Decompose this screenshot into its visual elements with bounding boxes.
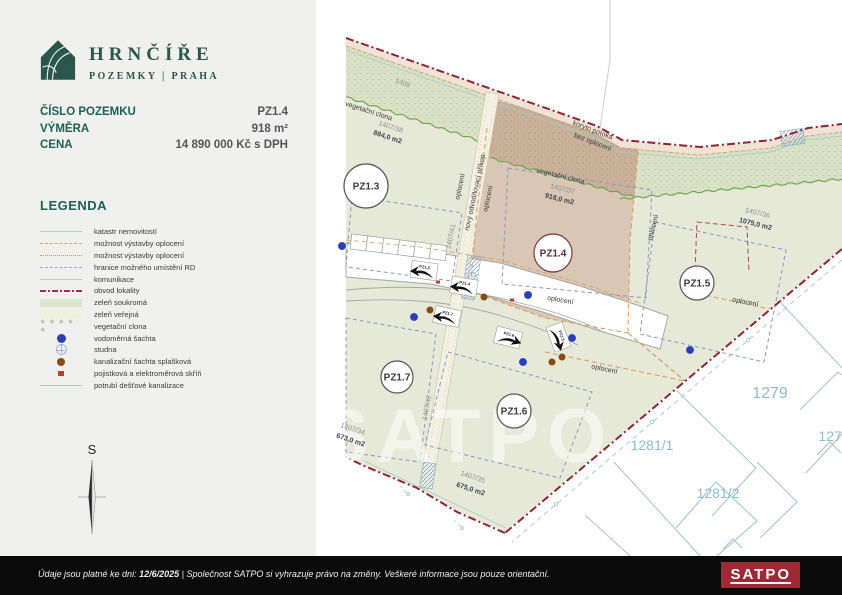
line-dashdot-swatch [40,290,82,292]
map-label: 1277 [818,428,842,444]
legend-label: kanalizační šachta splašková [94,357,191,366]
dot-blue-swatch [40,334,82,343]
watermark: SATPO [318,394,614,479]
sewer-shaft-icon [481,294,488,301]
legend-label: potrubí dešťové kanalizace [94,381,184,390]
plot-marker-label: PZ1.7 [384,373,411,384]
brand: HRNČÍŘE POZEMKY | PRAHA [40,38,219,87]
legend-label: možnost výstavby oplocení [94,251,184,260]
compass: S [72,442,112,542]
map-label: 1281/1 [631,437,674,453]
fill-private-swatch [40,299,82,307]
circle-cross-swatch [40,344,82,355]
legend-item: možnost výstavby oplocení [40,250,302,262]
meter-box-icon [510,299,514,302]
plot-marker-pz1-5[interactable]: PZ1.5 [680,266,714,300]
brand-logo-icon [40,38,76,87]
legend-label: vodoměrná šachta [94,334,156,343]
brochure-page: SATPO 1408vegetační clona1407/38884,0 m2… [0,0,842,595]
info-label: VÝMĚRA [40,121,89,138]
brand-subtitle: POZEMKY | PRAHA [89,71,219,82]
line-gray-swatch [40,279,82,280]
sewer-shaft-icon [427,307,434,314]
plot-marker-pz1-4[interactable]: PZ1.4 [534,234,572,272]
legend-item: hranice možného umístění RD [40,261,302,273]
legend-item: studna [40,344,302,356]
square-red-swatch [40,371,82,376]
plot-marker-label: PZ1.4 [540,249,567,260]
meter-box-icon [436,281,440,284]
map-label: 1281/2 [697,485,740,501]
line-orange-dash-swatch [40,243,82,244]
plot-marker-label: PZ1.6 [501,407,528,418]
legend: LEGENDA katastr nemovitostímožnost výsta… [40,198,302,391]
legend-label: obvod lokality [94,286,139,295]
plot-marker-pz1-7[interactable]: PZ1.7 [381,361,413,393]
water-shaft-icon [410,313,418,321]
plot-info: ČÍSLO POZEMKU PZ1.4 VÝMĚRA 918 m² CENA 1… [40,104,288,154]
legend-item: zeleň soukromá [40,297,302,309]
footer-date: 12/6/2025 [139,569,179,579]
legend-label: studna [94,345,117,354]
stars-swatch: ✳ ✳ ✳ ✳ ✳ [40,318,82,334]
water-shaft-icon [338,242,346,250]
compass-north-label: S [72,442,112,457]
line-lightgray-swatch [40,385,82,386]
fill-public-swatch [40,310,82,318]
footer-bar: Údaje jsou platné ke dni: 12/6/2025 | Sp… [0,556,842,595]
legend-item: ✳ ✳ ✳ ✳ ✳vegetační clona [40,320,302,332]
legend-label: zeleň soukromá [94,298,147,307]
sewer-shaft-icon [559,354,566,361]
satpo-logo[interactable]: SATPO [721,562,800,588]
driveway-arrow-pz1-3: PZ1.3 [409,260,438,281]
legend-label: hranice možného umístění RD [94,263,195,272]
legend-label: komunikace [94,275,134,284]
legend-item: komunikace [40,273,302,285]
plot-marker-label: PZ1.3 [353,182,380,193]
sewer-shaft-icon [549,359,556,366]
map-label: 1279 [752,385,788,402]
legend-item: katastr nemovitostí [40,226,302,238]
info-value: 14 890 000 Kč s DPH [175,137,288,154]
legend-label: vegetační clona [94,322,147,331]
water-shaft-icon [519,358,527,366]
dot-brown-swatch [40,358,82,366]
stream-line [600,0,610,128]
legend-label: pojistková a elektroměrová skříň [94,369,202,378]
info-row-price: CENA 14 890 000 Kč s DPH [40,137,288,154]
line-orange-dot-swatch [40,255,82,256]
legend-label: zeleň veřejná [94,310,139,319]
water-shaft-icon [568,334,576,342]
footer-disclaimer: Údaje jsou platné ke dni: 12/6/2025 | Sp… [38,569,549,579]
plot-marker-pz1-3[interactable]: PZ1.3 [344,164,388,208]
water-shaft-icon [686,346,694,354]
legend-label: možnost výstavby oplocení [94,239,184,248]
brand-name: HRNČÍŘE [89,44,219,66]
info-label: CENA [40,137,73,154]
info-value: 918 m² [252,121,288,138]
legend-item: kanalizační šachta splašková [40,356,302,368]
legend-item: možnost výstavby oplocení [40,238,302,250]
legend-label: katastr nemovitostí [94,227,157,236]
legend-item: pojistková a elektroměrová skříň [40,368,302,380]
legend-item: obvod lokality [40,285,302,297]
water-shaft-icon [524,291,532,299]
info-row-area: VÝMĚRA 918 m² [40,121,288,138]
legend-item: vodoměrná šachta [40,332,302,344]
compass-needle-icon [72,457,112,537]
info-row-number: ČÍSLO POZEMKU PZ1.4 [40,104,288,121]
line-cyan-swatch [40,231,82,232]
legend-title: LEGENDA [40,198,302,213]
plot-marker-pz1-6[interactable]: PZ1.6 [497,394,531,428]
legend-item: potrubí dešťové kanalizace [40,379,302,391]
info-label: ČÍSLO POZEMKU [40,104,136,121]
info-value: PZ1.4 [257,104,288,121]
legend-list: katastr nemovitostímožnost výstavby oplo… [40,226,302,391]
line-blue-dash-swatch [40,267,82,268]
sidebar: HRNČÍŘE POZEMKY | PRAHA ČÍSLO POZEMKU PZ… [0,0,316,556]
plot-marker-label: PZ1.5 [684,279,711,290]
